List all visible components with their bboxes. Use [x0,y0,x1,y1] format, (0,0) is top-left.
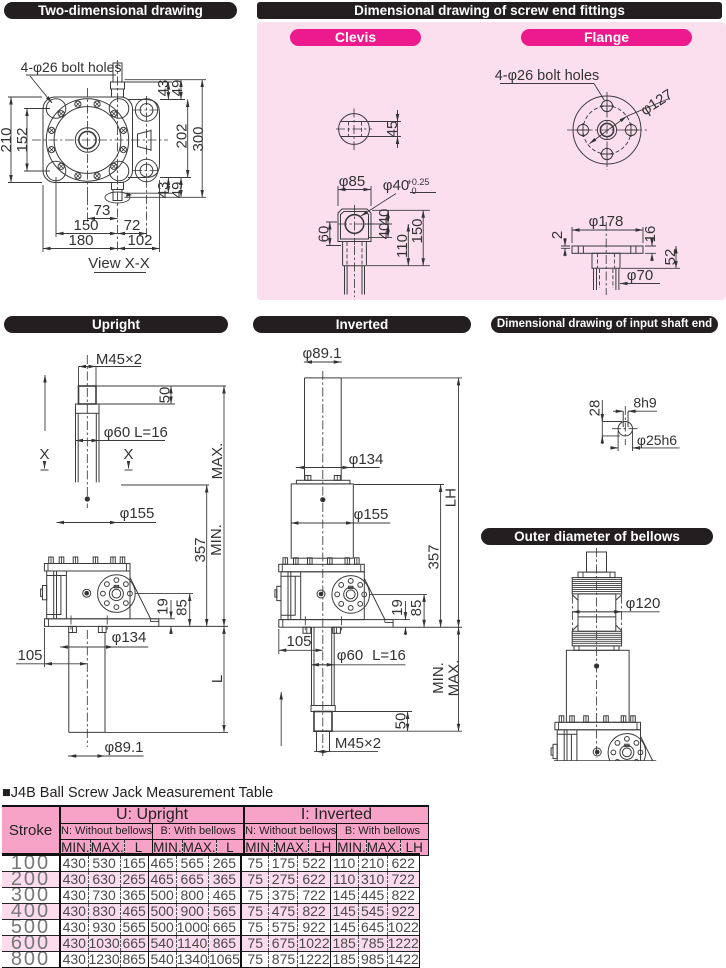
svg-text:LH: LH [443,488,460,507]
svg-text:φ155: φ155 [354,506,389,523]
svg-text:View X-X: View X-X [88,255,149,272]
svg-text:50: 50 [393,713,410,730]
svg-text:19: 19 [389,599,406,616]
svg-text:X: X [123,446,133,463]
svg-text:φ134: φ134 [112,629,147,646]
svg-text:300: 300 [190,126,207,151]
svg-text:85: 85 [174,599,191,616]
svg-text:4-φ26 bolt holes: 4-φ26 bolt holes [495,68,600,84]
svg-text:M45×2: M45×2 [335,735,381,752]
svg-text:φ85: φ85 [339,173,365,190]
svg-text:φ70: φ70 [627,267,653,284]
svg-text:φ178: φ178 [589,213,624,230]
svg-text:φ25h6: φ25h6 [637,432,677,448]
svg-text:L: L [209,675,226,683]
svg-text:φ155: φ155 [120,505,155,522]
svg-text:357: 357 [426,544,443,569]
svg-text:L=16: L=16 [134,424,168,441]
svg-text:180: 180 [68,232,93,249]
svg-text:8h9: 8h9 [633,395,657,411]
svg-text:MIN.: MIN. [208,524,225,556]
svg-text:28: 28 [587,400,604,417]
svg-text:φ60: φ60 [337,647,363,664]
svg-text:MAX.: MAX. [446,660,463,697]
svg-text:85: 85 [408,600,425,617]
svg-text:202: 202 [174,123,191,148]
svg-text:50: 50 [157,387,174,404]
svg-text:φ60: φ60 [104,424,130,441]
svg-text:φ40: φ40 [383,177,409,194]
svg-text:40: 40 [376,223,393,240]
svg-text:2: 2 [549,231,566,239]
svg-text:152: 152 [14,127,31,152]
svg-text:4-φ26 bolt holes: 4-φ26 bolt holes [21,59,122,75]
svg-text:φ89.1: φ89.1 [303,345,342,362]
svg-text:49: 49 [169,182,186,199]
svg-text:φ134: φ134 [349,451,384,468]
svg-text:210: 210 [0,127,15,152]
svg-text:45: 45 [384,121,401,138]
svg-text:60: 60 [316,226,333,243]
svg-text:L=16: L=16 [372,647,406,664]
svg-text:150: 150 [409,218,426,243]
svg-text:19: 19 [155,598,172,615]
svg-text:M45×2: M45×2 [96,351,142,368]
svg-text:357: 357 [192,537,209,562]
svg-text:X: X [39,446,49,463]
svg-text:MAX.: MAX. [209,443,226,480]
svg-text:105: 105 [17,647,42,664]
svg-text:+0.25: +0.25 [407,177,430,187]
svg-text:102: 102 [127,232,152,249]
svg-text:16: 16 [642,226,659,243]
svg-text:MIN.: MIN. [430,662,447,694]
svg-text:φ127: φ127 [638,86,676,119]
svg-text:φ89.1: φ89.1 [105,739,144,756]
svg-text:0: 0 [411,186,416,196]
svg-text:105: 105 [286,633,311,650]
svg-text:49: 49 [169,80,186,97]
svg-text:φ120: φ120 [626,595,661,612]
